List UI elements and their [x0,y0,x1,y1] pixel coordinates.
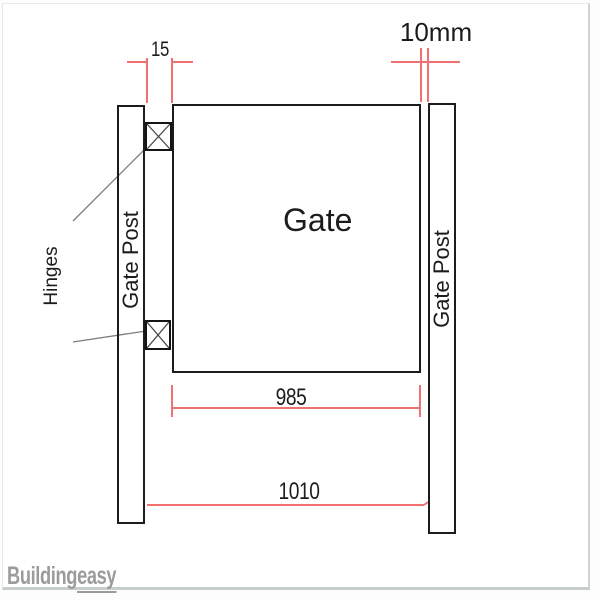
left-gate-post-label: Gate Post [118,205,144,315]
hinge-x-icon [147,322,169,348]
watermark-text-easy: easy [77,562,116,593]
hinge-x-icon [147,124,170,149]
hinges-label: Hinges [41,236,63,316]
right-gate-post-label: Gate Post [429,224,455,334]
hinge-top-symbol [145,122,172,151]
gate-installation-diagram: 15 10mm Gate 985 1010 Gate Post Gate Pos… [0,0,600,600]
dimension-latch-gap: 10mm [395,17,477,48]
hinge-bottom-symbol [145,320,171,350]
gate-label: Gate [283,202,352,239]
dimension-hinge-gap: 15 [139,38,181,62]
watermark-text-building: Building [7,562,77,590]
dimension-gate-width: 985 [266,384,316,412]
dimension-opening-width: 1010 [270,478,328,506]
buildingeasy-watermark: Buildingeasy [7,562,116,591]
